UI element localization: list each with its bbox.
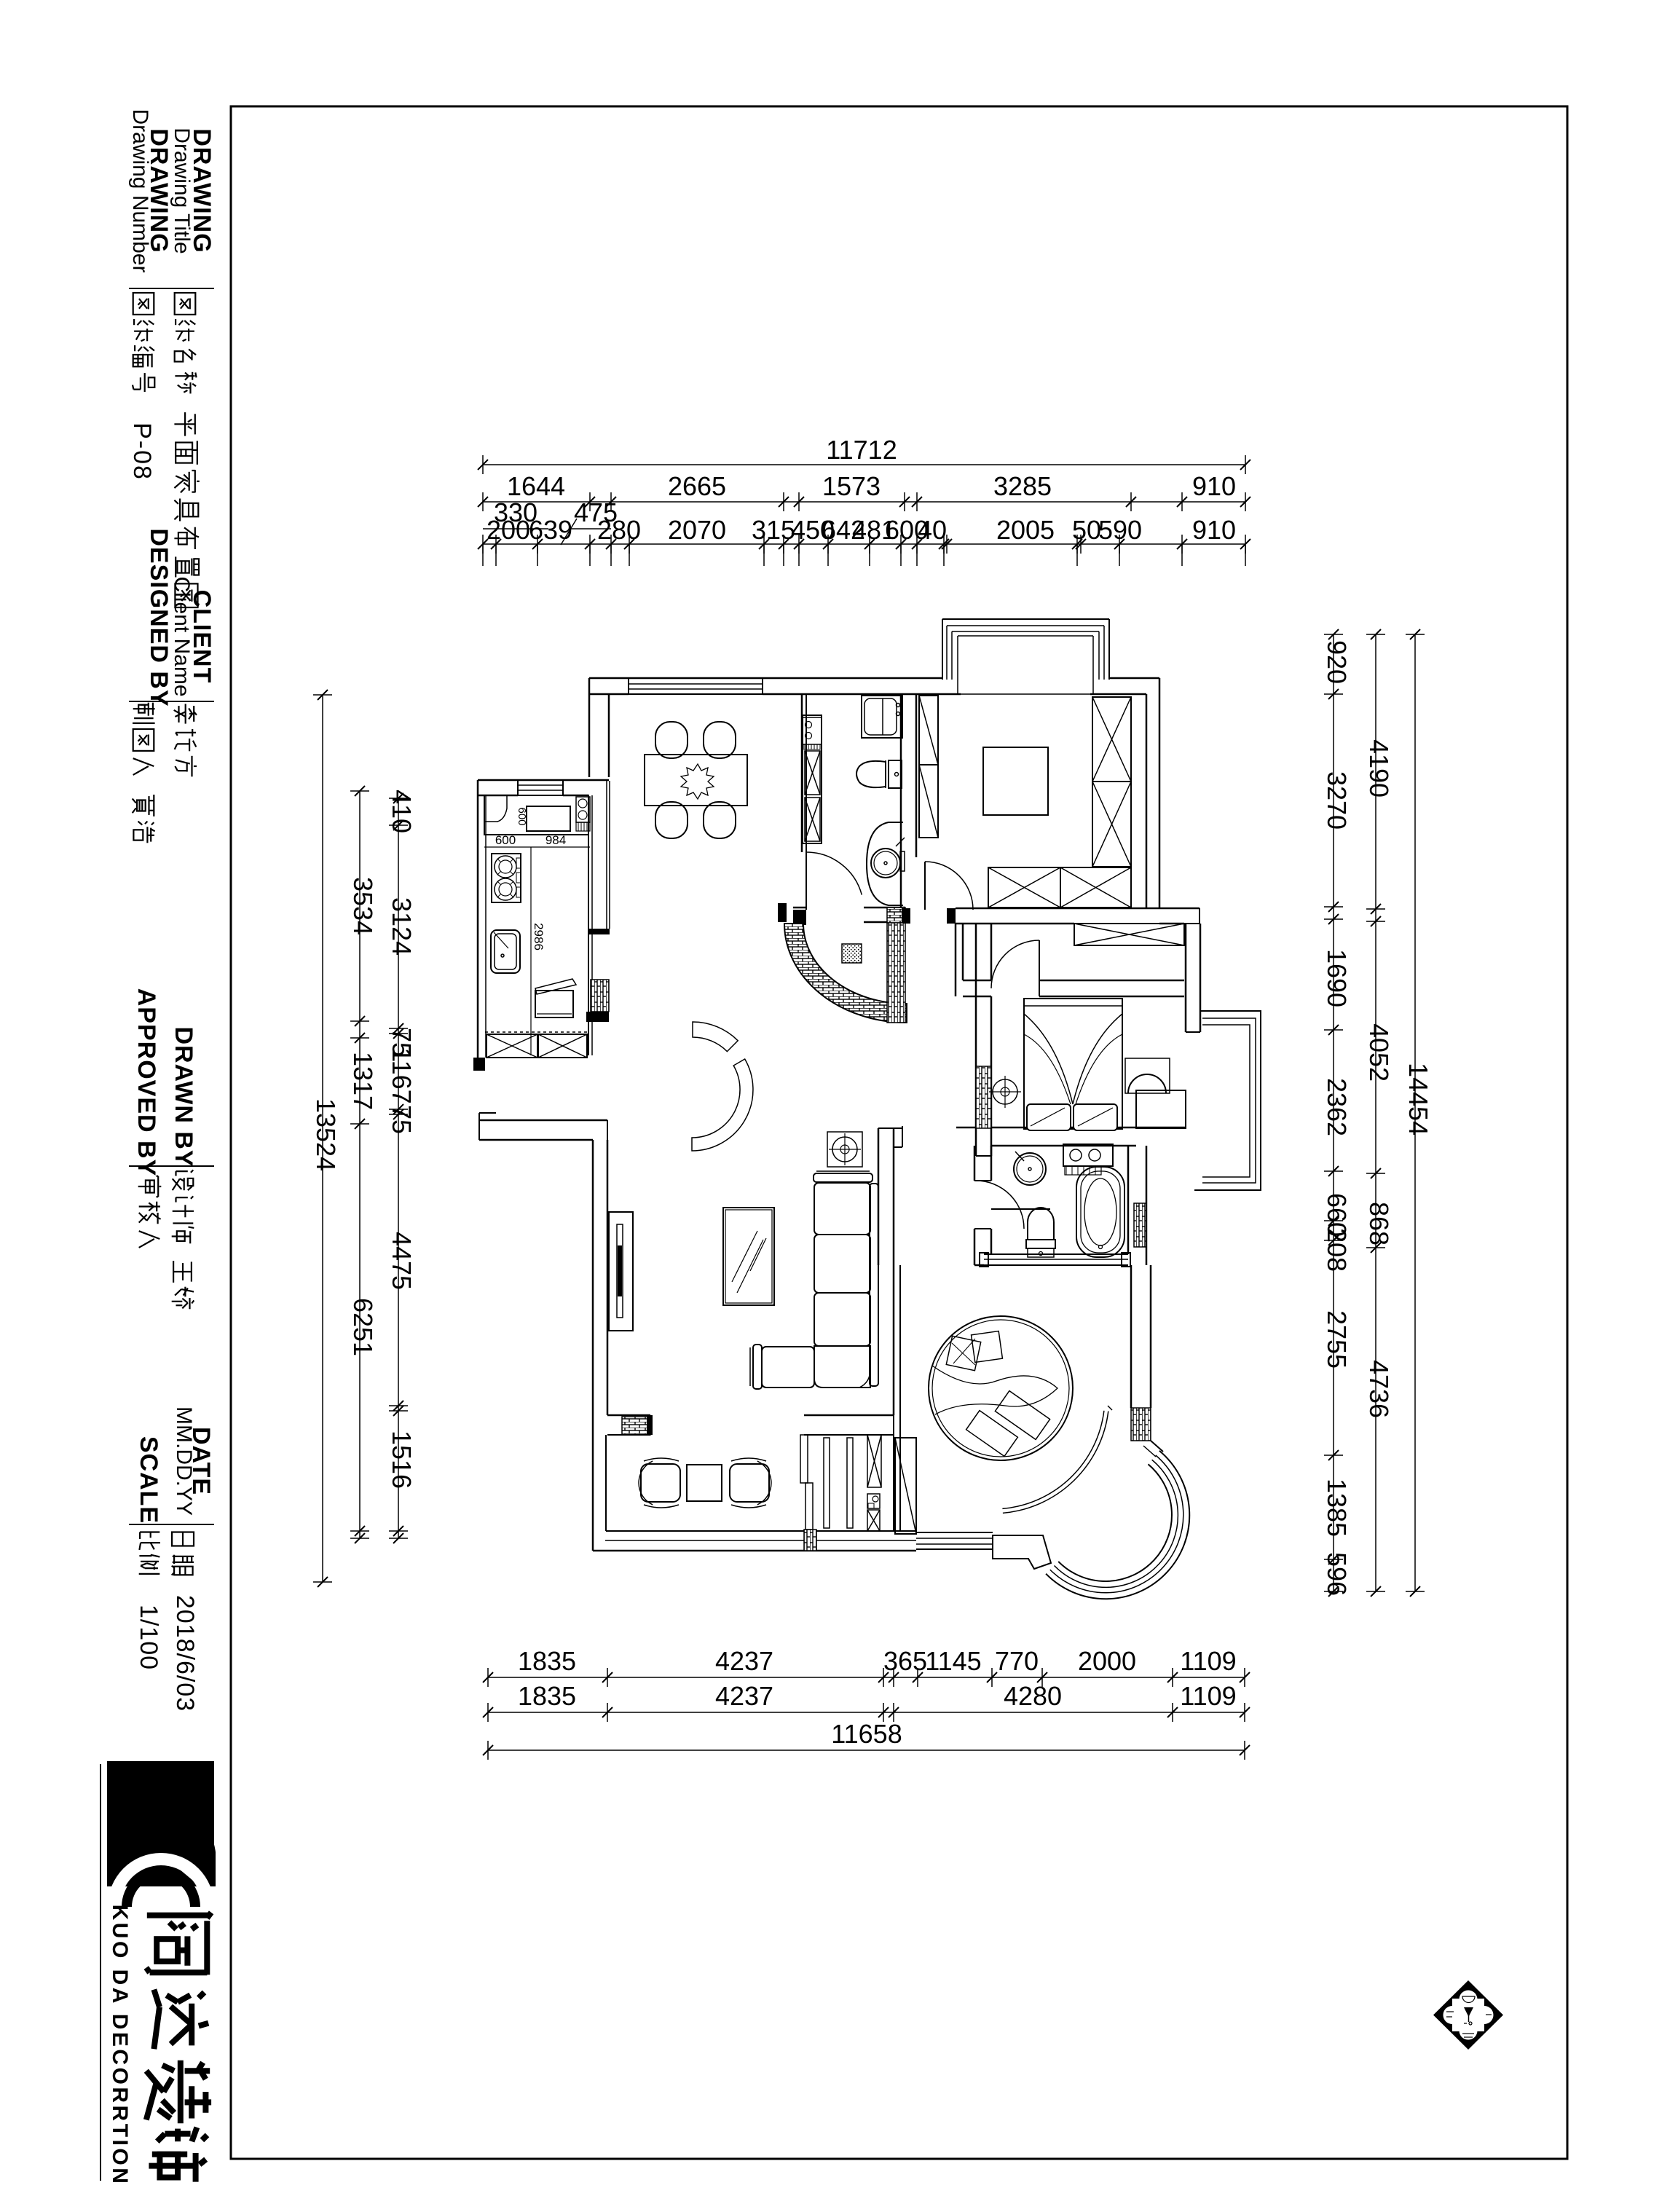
svg-text:4237: 4237	[715, 1646, 773, 1676]
svg-text:639: 639	[529, 515, 572, 545]
svg-text:770: 770	[995, 1646, 1039, 1676]
svg-text:14454: 14454	[1403, 1063, 1433, 1135]
svg-text:1167: 1167	[387, 1047, 417, 1103]
svg-text:1317: 1317	[348, 1052, 378, 1110]
svg-text:50: 50	[1072, 515, 1101, 545]
svg-text:1385: 1385	[1322, 1479, 1352, 1537]
svg-text:2362: 2362	[1322, 1078, 1352, 1136]
svg-text:11658: 11658	[831, 1719, 902, 1749]
svg-text:365: 365	[883, 1646, 927, 1676]
svg-text:1690: 1690	[1322, 949, 1352, 1007]
svg-text:600: 600	[516, 807, 528, 825]
svg-text:1573: 1573	[822, 471, 881, 501]
svg-text:984: 984	[545, 833, 566, 847]
svg-text:590: 590	[1098, 515, 1142, 545]
svg-text:315: 315	[752, 515, 795, 545]
svg-text:11712: 11712	[826, 435, 897, 465]
svg-text:40: 40	[918, 515, 947, 545]
svg-text:596: 596	[1322, 1552, 1352, 1596]
svg-text:6251: 6251	[348, 1298, 378, 1356]
svg-text:1835: 1835	[518, 1646, 576, 1676]
svg-text:4280: 4280	[1004, 1681, 1062, 1711]
svg-text:3534: 3534	[348, 877, 378, 935]
svg-text:868: 868	[1364, 1202, 1394, 1245]
svg-text:Drawing Number: Drawing Number	[128, 109, 152, 272]
svg-text:2665: 2665	[668, 471, 726, 501]
svg-text:1109: 1109	[1180, 1681, 1236, 1711]
svg-text:75: 75	[387, 1105, 417, 1134]
svg-text:920: 920	[1322, 640, 1352, 684]
svg-text:1835: 1835	[518, 1681, 576, 1711]
svg-text:910: 910	[1192, 471, 1236, 501]
svg-text:3270: 3270	[1322, 771, 1352, 830]
svg-text:DESIGNED BY: DESIGNED BY	[145, 528, 173, 706]
svg-text:P-08: P-08	[128, 422, 156, 481]
svg-text:KUO DA DECORRTION: KUO DA DECORRTION	[108, 1905, 132, 2187]
svg-text:MM.DD.YY: MM.DD.YY	[172, 1406, 196, 1516]
svg-text:SCALE: SCALE	[135, 1436, 162, 1524]
svg-text:280: 280	[597, 515, 641, 545]
svg-text:1/100: 1/100	[135, 1605, 162, 1670]
svg-text:200: 200	[487, 515, 530, 545]
svg-text:1145: 1145	[925, 1646, 981, 1676]
svg-text:DRAWN BY: DRAWN BY	[170, 1026, 197, 1167]
svg-text:1109: 1109	[1180, 1646, 1236, 1676]
svg-text:APPROVED BY: APPROVED BY	[133, 988, 160, 1177]
svg-text:2755: 2755	[1322, 1310, 1352, 1369]
svg-text:4475: 4475	[387, 1232, 417, 1290]
svg-text:2070: 2070	[668, 515, 726, 545]
svg-text:4052: 4052	[1364, 1023, 1394, 1082]
svg-text:910: 910	[1192, 515, 1236, 545]
svg-text:13524: 13524	[311, 1098, 341, 1171]
svg-text:410: 410	[387, 790, 417, 833]
svg-text:2000: 2000	[1078, 1646, 1136, 1676]
svg-text:2018/6/03: 2018/6/03	[171, 1595, 199, 1712]
svg-text:4190: 4190	[1364, 739, 1394, 798]
svg-text:208: 208	[1322, 1228, 1352, 1272]
svg-text:1516: 1516	[387, 1430, 417, 1489]
svg-text:2005: 2005	[996, 515, 1055, 545]
svg-text:4237: 4237	[715, 1681, 773, 1711]
svg-text:1644: 1644	[507, 471, 565, 501]
svg-text:3285: 3285	[993, 471, 1052, 501]
svg-text:4736: 4736	[1364, 1360, 1394, 1418]
svg-text:3124: 3124	[387, 897, 417, 956]
svg-text:600: 600	[495, 833, 516, 847]
svg-text:2986: 2986	[532, 923, 545, 950]
